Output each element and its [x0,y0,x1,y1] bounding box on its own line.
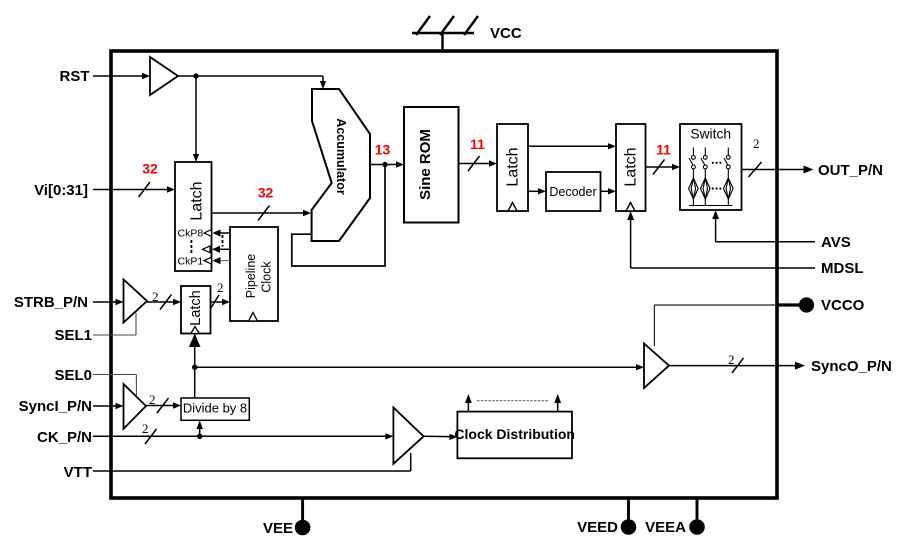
svg-text:SEL0: SEL0 [54,367,92,384]
svg-text:VTT: VTT [64,464,92,481]
svg-text:Latch: Latch [505,147,522,186]
svg-text:MDSL: MDSL [821,260,864,277]
svg-text:Clock Distribution: Clock Distribution [454,426,575,442]
svg-text:CkP8: CkP8 [178,227,204,239]
svg-text:VEED: VEED [577,519,618,536]
svg-text:11: 11 [470,136,485,152]
svg-text:Latch: Latch [188,290,204,325]
svg-text:32: 32 [258,185,274,201]
svg-text:2: 2 [217,280,224,295]
svg-text:VEEA: VEEA [645,519,686,536]
svg-text:Clock: Clock [260,261,274,293]
svg-text:VCCO: VCCO [821,297,865,314]
svg-text:11: 11 [656,142,671,158]
svg-text:2: 2 [753,136,760,151]
svg-text:SyncI_P/N: SyncI_P/N [19,398,92,415]
svg-text:AVS: AVS [821,234,851,251]
svg-text:VEE: VEE [263,520,293,537]
svg-text:Latch: Latch [189,181,206,220]
svg-text:2: 2 [142,421,149,436]
svg-text:2: 2 [152,289,159,304]
svg-text:RST: RST [60,68,90,85]
svg-text:VCC: VCC [490,25,522,42]
svg-text:13: 13 [375,142,391,158]
svg-text:32: 32 [142,161,158,177]
svg-text:Vi[0:31]: Vi[0:31] [34,182,88,199]
svg-text:Pipeline: Pipeline [244,254,258,299]
svg-text:CK_P/N: CK_P/N [37,429,92,446]
svg-text:SEL1: SEL1 [54,327,92,344]
svg-text:Accumulator: Accumulator [334,118,348,195]
svg-text:Divide by 8: Divide by 8 [183,401,247,416]
svg-text:OUT_P/N: OUT_P/N [818,162,883,179]
svg-text:Sine ROM: Sine ROM [417,129,434,200]
svg-text:2: 2 [149,392,156,407]
svg-text:Switch: Switch [690,127,731,142]
svg-text:Decoder: Decoder [549,185,596,199]
svg-text:CkP1: CkP1 [178,256,204,268]
svg-text:2: 2 [728,352,735,367]
svg-text:Latch: Latch [623,147,640,186]
svg-text:SyncO_P/N: SyncO_P/N [811,358,892,375]
svg-text:STRB_P/N: STRB_P/N [14,294,88,311]
